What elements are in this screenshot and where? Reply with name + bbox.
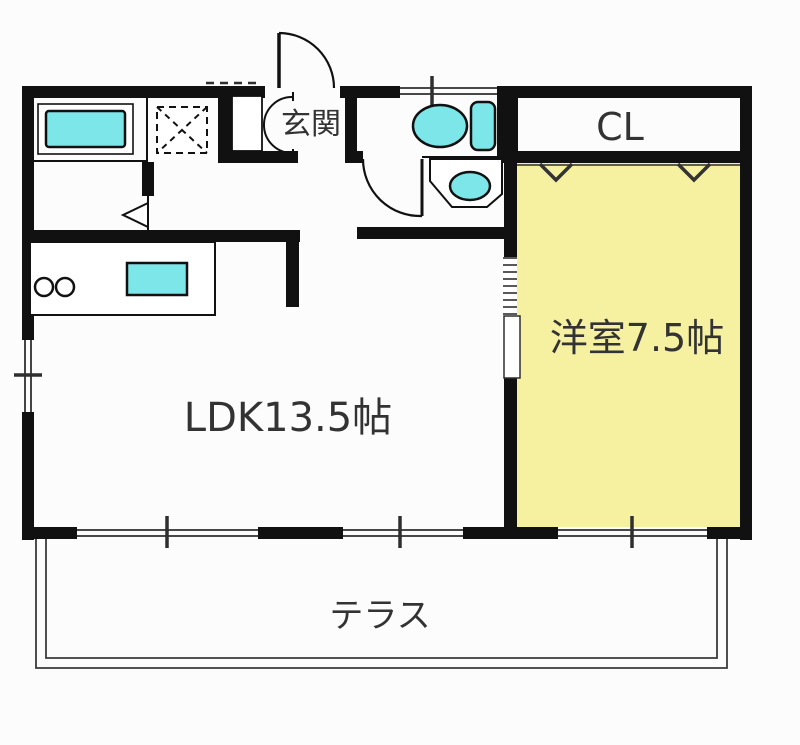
- bottom-wall-2: [258, 527, 343, 539]
- terrace-label: テラス: [329, 596, 430, 636]
- ldk-label: LDK13.5帖: [184, 395, 392, 441]
- wall-washroom-stub: [345, 151, 363, 163]
- bottom-wall-4: [707, 527, 752, 539]
- wall-kitchen-top: [22, 230, 300, 242]
- wall-kitchen-stub: [286, 242, 299, 307]
- closet-label: CL: [596, 105, 644, 149]
- window-ldk-west: [14, 340, 42, 412]
- floorplan-canvas: 玄関 CL: [0, 0, 800, 745]
- wall-closet-bottom: [517, 151, 740, 163]
- kitchen: [30, 242, 215, 315]
- shoe-cabinet: [232, 96, 262, 151]
- entrance-door-arc: [279, 33, 334, 88]
- washbasin-area: [363, 157, 502, 216]
- right-wall: [740, 86, 752, 540]
- wall-washbasin-bottom: [357, 227, 517, 239]
- washbasin-sink: [450, 172, 490, 200]
- bottom-wall-1: [22, 527, 77, 539]
- wall-bathroom-door-stub: [142, 162, 154, 196]
- floorplan: 玄関 CL: [0, 0, 800, 745]
- left-wall-lower: [22, 412, 34, 540]
- kitchen-sink: [127, 263, 187, 295]
- laundry-area: [157, 107, 207, 153]
- top-wall-right: [497, 86, 752, 98]
- western-room-label: 洋室7.5帖: [550, 316, 724, 360]
- stove-burner: [56, 278, 74, 296]
- bathroom: [33, 97, 148, 230]
- washroom-door-arc: [363, 159, 422, 216]
- bathroom-door-icon: [123, 203, 148, 227]
- toilet-tank: [471, 102, 495, 150]
- window-ldk-south-right: [343, 516, 463, 548]
- bathtub: [46, 111, 125, 147]
- window-ldk-south-left: [77, 516, 258, 548]
- sliding-door-leaf: [504, 316, 520, 378]
- toilet-room: [413, 102, 495, 150]
- wall-closet-left: [497, 86, 518, 163]
- wall-western-left-upper: [504, 163, 517, 257]
- bottom-wall-3: [463, 527, 558, 539]
- entrance-area: 玄関: [232, 33, 341, 158]
- stove-burner: [35, 278, 53, 296]
- wall-western-left-lower: [504, 377, 517, 527]
- toilet-bowl: [413, 105, 467, 147]
- entrance-label: 玄関: [281, 107, 341, 142]
